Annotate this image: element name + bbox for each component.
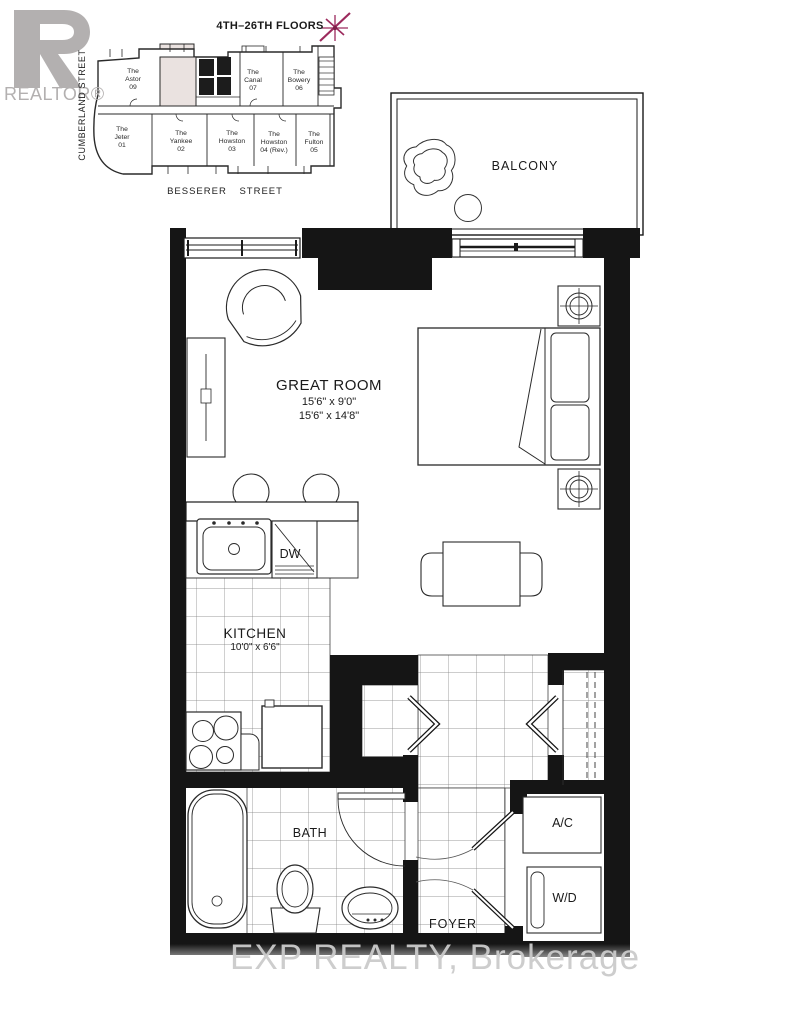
unit-label-yankee: TheYankee02 xyxy=(161,130,201,153)
great-room-label: GREAT ROOM xyxy=(249,377,409,394)
kitchen-label: KITCHEN xyxy=(195,626,315,641)
unit-label-astor: TheAstor09 xyxy=(113,68,153,91)
balcony-table xyxy=(455,195,482,222)
unit-label-fulton: TheFulton05 xyxy=(294,131,334,154)
dining-set xyxy=(421,542,542,606)
balcony-label: BALCONY xyxy=(460,159,590,173)
brokerage-watermark: EXP REALTY, Brokerage xyxy=(230,938,640,978)
bed xyxy=(418,328,600,465)
floor-plan-graphics xyxy=(0,0,791,1024)
street-label-besserer: BESSERER STREET xyxy=(150,186,300,197)
great-room-window xyxy=(184,238,300,258)
unit-label-howston-04: TheHowston04 (Rev.) xyxy=(250,131,298,154)
great-room-label-group: GREAT ROOM 15'6" x 9'0" 15'6" x 14'8" xyxy=(249,377,409,422)
great-room-dim-2: 15'6" x 14'8" xyxy=(249,410,409,422)
floor-plan-page: REALTOR® 4TH–26TH FLOORS CUMBERLAND STRE… xyxy=(0,0,791,1024)
kitchen-counter xyxy=(186,502,358,521)
nightstand-lamp-bottom xyxy=(558,469,600,509)
unit-label-jeter: TheJeter01 xyxy=(102,126,142,149)
armchair xyxy=(217,260,313,356)
foyer-label: FOYER xyxy=(413,917,493,931)
great-room-dim-1: 15'6" x 9'0" xyxy=(249,396,409,408)
fridge xyxy=(262,700,322,768)
nightstand-lamp-top xyxy=(558,286,600,326)
wd-label: W/D xyxy=(532,891,597,905)
balcony-slider-door xyxy=(452,239,583,257)
dishwasher-label: DW xyxy=(272,547,308,561)
counter-return xyxy=(241,734,259,770)
unit-label-howston-03: TheHowston03 xyxy=(210,130,254,153)
key-plan-title: 4TH–26TH FLOORS xyxy=(200,20,340,32)
ac-label: A/C xyxy=(531,816,594,830)
kitchen-sink xyxy=(197,519,271,574)
bathtub xyxy=(188,790,247,928)
realtor-wordmark: REALTOR® xyxy=(4,84,124,105)
bath-label: BATH xyxy=(270,826,350,840)
street-label-cumberland: CUMBERLAND STREET xyxy=(77,0,87,215)
kitchen-label-group: KITCHEN 10'0" x 6'6" xyxy=(195,626,315,653)
media-console xyxy=(187,338,225,457)
kitchen-dim: 10'0" x 6'6" xyxy=(195,642,315,653)
vanity-sink xyxy=(342,887,398,929)
unit-label-canal: TheCanal07 xyxy=(233,69,273,92)
key-plan xyxy=(94,44,341,174)
stove xyxy=(186,712,241,770)
unit-label-bowery: TheBowery06 xyxy=(279,69,319,92)
